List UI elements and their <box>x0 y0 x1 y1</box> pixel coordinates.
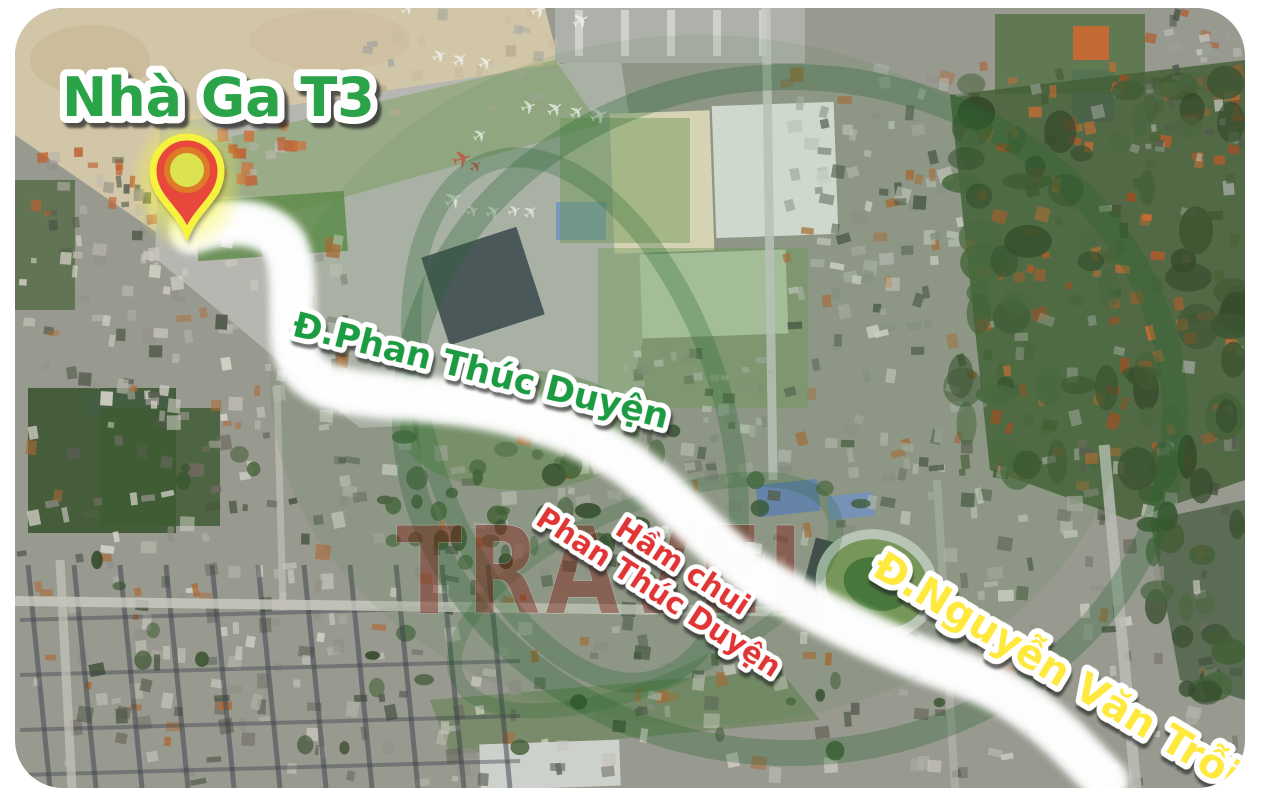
location-pin <box>129 110 245 254</box>
terminal-label: Nhà Ga T3 <box>62 66 375 129</box>
satellite-map: ✈✈✈✈✈✈✈✈✈✈✈✈✈✈✈✈✈✈ TRAVEL Nhà Ga T3 Đ.Ph… <box>15 8 1245 788</box>
pin-inner-ring <box>167 150 207 190</box>
map-canvas: ✈✈✈✈✈✈✈✈✈✈✈✈✈✈✈✈✈✈ TRAVEL Nhà Ga T3 Đ.Ph… <box>15 8 1245 788</box>
